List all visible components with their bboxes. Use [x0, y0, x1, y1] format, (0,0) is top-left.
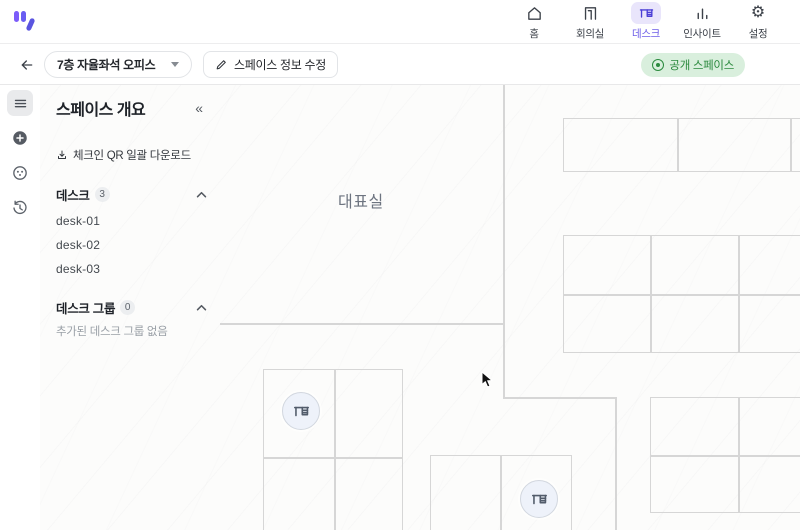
wall	[503, 85, 505, 397]
wall	[503, 397, 616, 399]
public-space-label: 공개 스페이스	[669, 57, 734, 73]
app-header: 홈 회의실 데스크 인사이트 ⚙ 설정	[0, 0, 800, 44]
gear-icon: ⚙	[743, 2, 773, 24]
room-label: 대표실	[338, 188, 384, 212]
desk-list-item[interactable]: desk-01	[56, 209, 215, 233]
space-selector-value: 7층 자율좌석 오피스	[57, 56, 155, 73]
desk-section-header[interactable]: 데스크 3	[56, 185, 207, 204]
nav-home[interactable]: 홈	[510, 2, 558, 41]
history-button[interactable]	[7, 195, 33, 221]
mouse-cursor	[481, 371, 495, 389]
desk-area	[263, 369, 403, 530]
wall	[615, 397, 617, 530]
logo-slash	[26, 17, 36, 31]
back-button[interactable]	[16, 54, 38, 76]
desk-icon	[530, 490, 549, 509]
desk-count-badge: 3	[95, 187, 110, 202]
layers-menu-button[interactable]	[7, 90, 33, 116]
desk-pin[interactable]	[282, 392, 320, 430]
add-button[interactable]	[7, 125, 33, 151]
desk-group-count-badge: 0	[120, 300, 135, 315]
nav-insights[interactable]: 인사이트	[678, 2, 726, 41]
chevron-down-icon	[171, 62, 179, 67]
stickers-button[interactable]	[7, 160, 33, 186]
nav-insights-label: 인사이트	[683, 26, 720, 41]
main-nav: 홈 회의실 데스크 인사이트 ⚙ 설정	[510, 2, 782, 41]
nav-desks-label: 데스크	[632, 26, 660, 41]
edit-space-label: 스페이스 정보 수정	[234, 56, 326, 73]
pencil-icon	[215, 58, 228, 71]
download-icon	[56, 149, 68, 161]
app-logo[interactable]	[14, 11, 33, 33]
collapse-panel-button[interactable]: «	[191, 100, 207, 116]
panel-title: 스페이스 개요	[56, 96, 145, 120]
desk-icon	[292, 402, 311, 421]
bar-chart-icon	[687, 2, 717, 24]
tool-rail	[0, 85, 40, 530]
desk-group-section-header[interactable]: 데스크 그룹 0	[56, 298, 207, 317]
public-space-badge: 공개 스페이스	[641, 53, 745, 77]
desk-pin[interactable]	[520, 480, 558, 518]
room	[563, 235, 800, 353]
nav-meeting-rooms[interactable]: 회의실	[566, 2, 614, 41]
nav-meeting-label: 회의실	[576, 26, 604, 41]
nav-desks[interactable]: 데스크	[622, 2, 670, 41]
home-icon	[519, 2, 549, 24]
qr-download-label: 체크인 QR 일괄 다운로드	[73, 147, 191, 163]
space-selector-dropdown[interactable]: 7층 자율좌석 오피스	[44, 51, 192, 78]
desk-list-item[interactable]: desk-03	[56, 257, 215, 281]
chevron-up-icon	[196, 304, 207, 311]
plus-circle-icon	[11, 129, 29, 147]
circle-dot-icon	[652, 59, 664, 71]
nav-settings-label: 설정	[749, 26, 768, 41]
room	[650, 397, 800, 513]
desk-section-title: 데스크	[56, 185, 90, 204]
nav-home-label: 홈	[529, 26, 538, 41]
qr-download-link[interactable]: 체크인 QR 일괄 다운로드	[56, 147, 215, 163]
logo-bar	[14, 11, 19, 22]
chevron-up-icon	[196, 191, 207, 198]
dots-circle-icon	[11, 164, 29, 182]
desk-group-empty-text: 추가된 데스크 그룹 없음	[56, 323, 215, 339]
door-icon	[575, 2, 605, 24]
space-overview-panel: 스페이스 개요 « 체크인 QR 일괄 다운로드 데스크 3 desk-01 d…	[40, 85, 215, 339]
desk-group-section-title: 데스크 그룹	[56, 298, 115, 317]
desk-list: desk-01 desk-02 desk-03	[40, 209, 215, 281]
edit-space-button[interactable]: 스페이스 정보 수정	[203, 51, 338, 78]
room	[563, 118, 800, 172]
wall	[220, 323, 504, 325]
nav-settings[interactable]: ⚙ 설정	[734, 2, 782, 41]
desk-icon	[631, 2, 661, 24]
history-icon	[11, 199, 29, 217]
logo-bar	[21, 11, 26, 22]
desk-list-item[interactable]: desk-02	[56, 233, 215, 257]
space-toolbar: 7층 자율좌석 오피스 스페이스 정보 수정 공개 스페이스	[0, 45, 800, 85]
hamburger-icon	[13, 96, 28, 111]
